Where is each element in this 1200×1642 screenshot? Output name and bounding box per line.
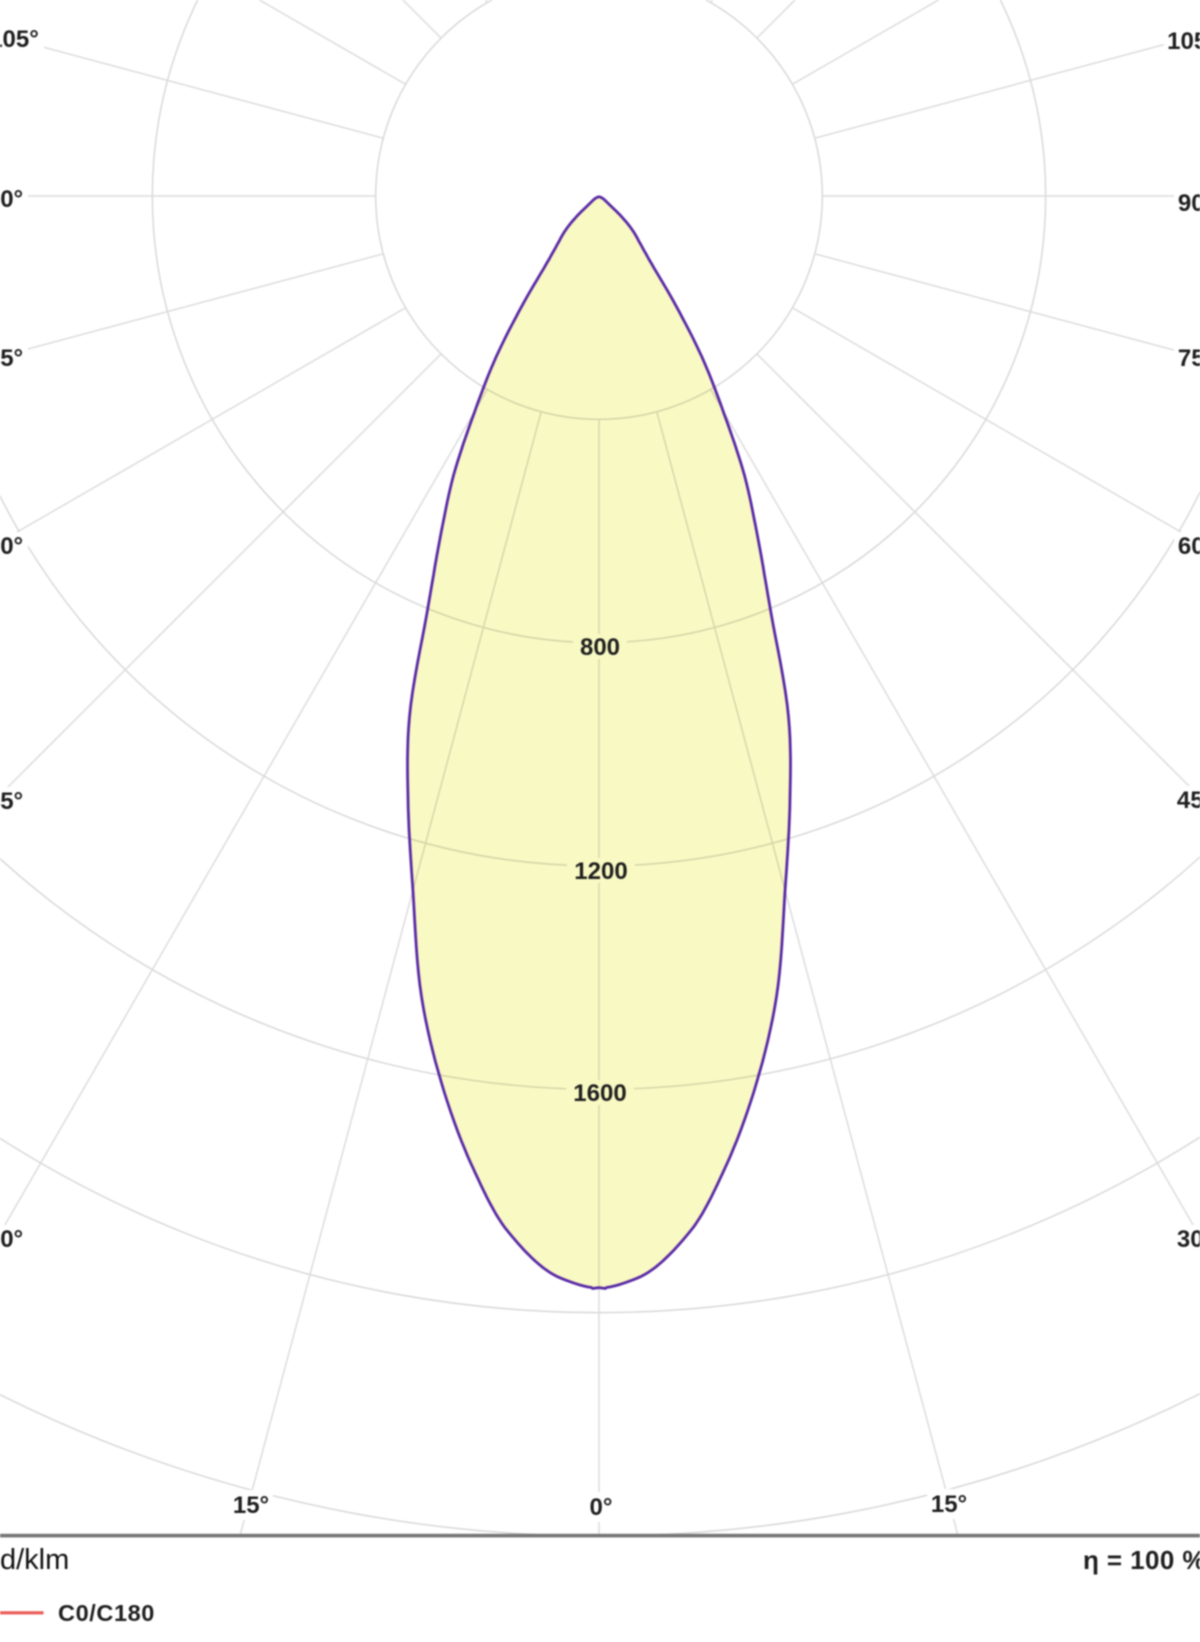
svg-text:60°: 60° <box>1178 533 1200 560</box>
svg-text:75°: 75° <box>1178 345 1200 372</box>
svg-text:105°: 105° <box>0 26 39 53</box>
svg-text:C0/C180: C0/C180 <box>58 1600 155 1626</box>
svg-text:90°: 90° <box>1178 190 1200 217</box>
svg-text:0°: 0° <box>590 1494 613 1521</box>
svg-text:45°: 45° <box>0 788 23 815</box>
svg-text:15°: 15° <box>931 1491 967 1518</box>
svg-text:105°: 105° <box>1167 28 1200 55</box>
svg-text:cd/klm: cd/klm <box>0 1544 69 1576</box>
svg-text:90°: 90° <box>0 186 23 213</box>
svg-text:1200: 1200 <box>574 858 627 885</box>
svg-text:η = 100 %: η = 100 % <box>1083 1545 1200 1575</box>
svg-text:15°: 15° <box>233 1492 269 1519</box>
svg-text:30°: 30° <box>0 1226 23 1253</box>
svg-text:30°: 30° <box>1177 1226 1200 1253</box>
svg-text:75°: 75° <box>0 345 23 372</box>
svg-text:800: 800 <box>580 634 620 661</box>
svg-text:60°: 60° <box>0 533 23 560</box>
svg-text:45°: 45° <box>1177 787 1200 814</box>
svg-text:1600: 1600 <box>573 1080 626 1107</box>
